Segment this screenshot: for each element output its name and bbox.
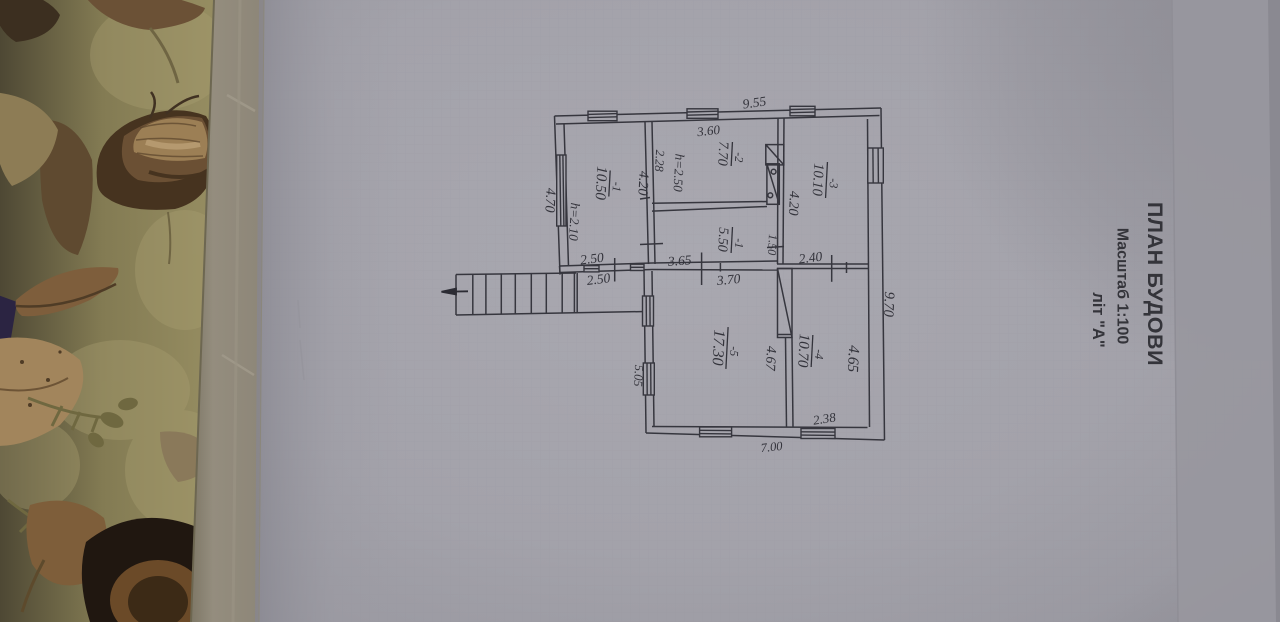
svg-text:1.50: 1.50 — [765, 234, 780, 256]
svg-text:4.65: 4.65 — [844, 345, 862, 373]
svg-text:4.70: 4.70 — [541, 188, 557, 213]
svg-text:7.70: 7.70 — [714, 141, 730, 166]
svg-text:9.70: 9.70 — [880, 291, 897, 318]
svg-text:h=2.10: h=2.10 — [566, 202, 583, 241]
svg-text:3.60: 3.60 — [695, 122, 721, 139]
svg-text:h=2.50: h=2.50 — [670, 153, 687, 192]
svg-text:5.50: 5.50 — [714, 227, 730, 252]
svg-text:3.70: 3.70 — [715, 271, 741, 288]
svg-text:2.50: 2.50 — [579, 250, 605, 268]
svg-text:Масштаб 1:100: Масштаб 1:100 — [1114, 228, 1131, 345]
svg-text:4.20: 4.20 — [785, 191, 801, 216]
svg-text:5.05: 5.05 — [631, 364, 646, 387]
svg-text:4.20: 4.20 — [634, 171, 650, 196]
svg-text:7.00: 7.00 — [760, 439, 784, 455]
svg-text:літ "А": літ "А" — [1089, 292, 1107, 347]
svg-text:-4: -4 — [812, 349, 827, 360]
svg-text:10.50: 10.50 — [592, 166, 610, 201]
svg-text:3.65: 3.65 — [666, 252, 692, 269]
svg-text:10.10: 10.10 — [809, 163, 827, 197]
svg-text:-1: -1 — [610, 182, 625, 193]
svg-text:2.40: 2.40 — [798, 249, 824, 267]
svg-text:2.50: 2.50 — [586, 270, 612, 288]
svg-text:2.28: 2.28 — [652, 149, 667, 172]
svg-text:ПЛАН БУДОВИ: ПЛАН БУДОВИ — [1143, 202, 1167, 366]
svg-text:-1: -1 — [732, 238, 747, 249]
svg-text:-5: -5 — [727, 346, 742, 357]
svg-text:10.70: 10.70 — [794, 333, 812, 368]
svg-text:4.67: 4.67 — [762, 346, 778, 372]
svg-text:17.30: 17.30 — [709, 329, 728, 366]
svg-text:-2: -2 — [732, 152, 747, 163]
svg-text:-3: -3 — [827, 178, 842, 189]
